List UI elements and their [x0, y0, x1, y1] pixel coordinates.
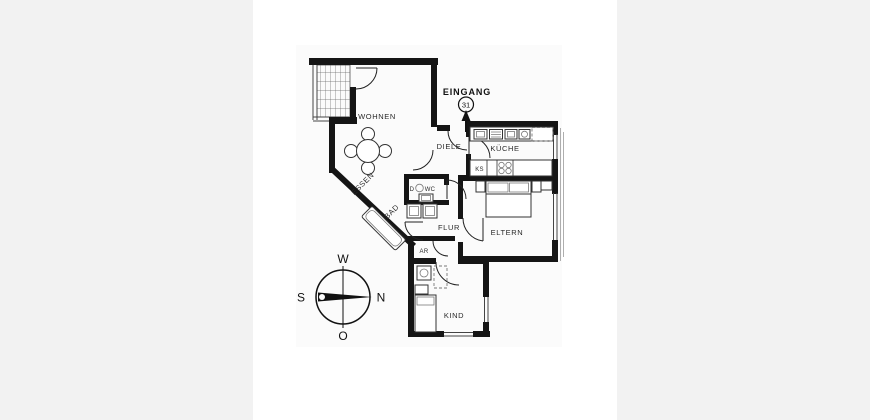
compass-south: S	[297, 291, 305, 305]
room-label-wohnen: WOHNEN	[358, 112, 396, 121]
kind-bed	[415, 295, 436, 332]
room-label-diele: DIELE	[437, 142, 462, 151]
room-label-eltern: ELTERN	[491, 228, 524, 237]
room-label-wc: WC	[425, 187, 436, 193]
page: { "floorplan": { "entrance": { "label": …	[0, 0, 870, 420]
room-label-flur: FLUR	[438, 223, 460, 232]
entrance-label: EINGANG	[443, 87, 491, 97]
compass-east: O	[338, 329, 347, 343]
compass-needle-hole	[319, 294, 325, 300]
compass-west: W	[337, 252, 349, 266]
label-wc-prefix: D	[410, 187, 415, 193]
washing-machine-icon	[417, 266, 431, 280]
label-ks: KS	[475, 167, 484, 173]
room-label-ar: AR	[420, 249, 429, 255]
room-label-kind: KIND	[444, 311, 464, 320]
balcony	[313, 63, 350, 121]
floorplan-svg: EINGANG 31 WOHNEN ESSEN DIELE KÜCHE KS B…	[0, 0, 870, 420]
room-label-kueche: KÜCHE	[490, 144, 519, 153]
compass-north: N	[377, 291, 386, 305]
apartment-number: 31	[462, 101, 470, 110]
